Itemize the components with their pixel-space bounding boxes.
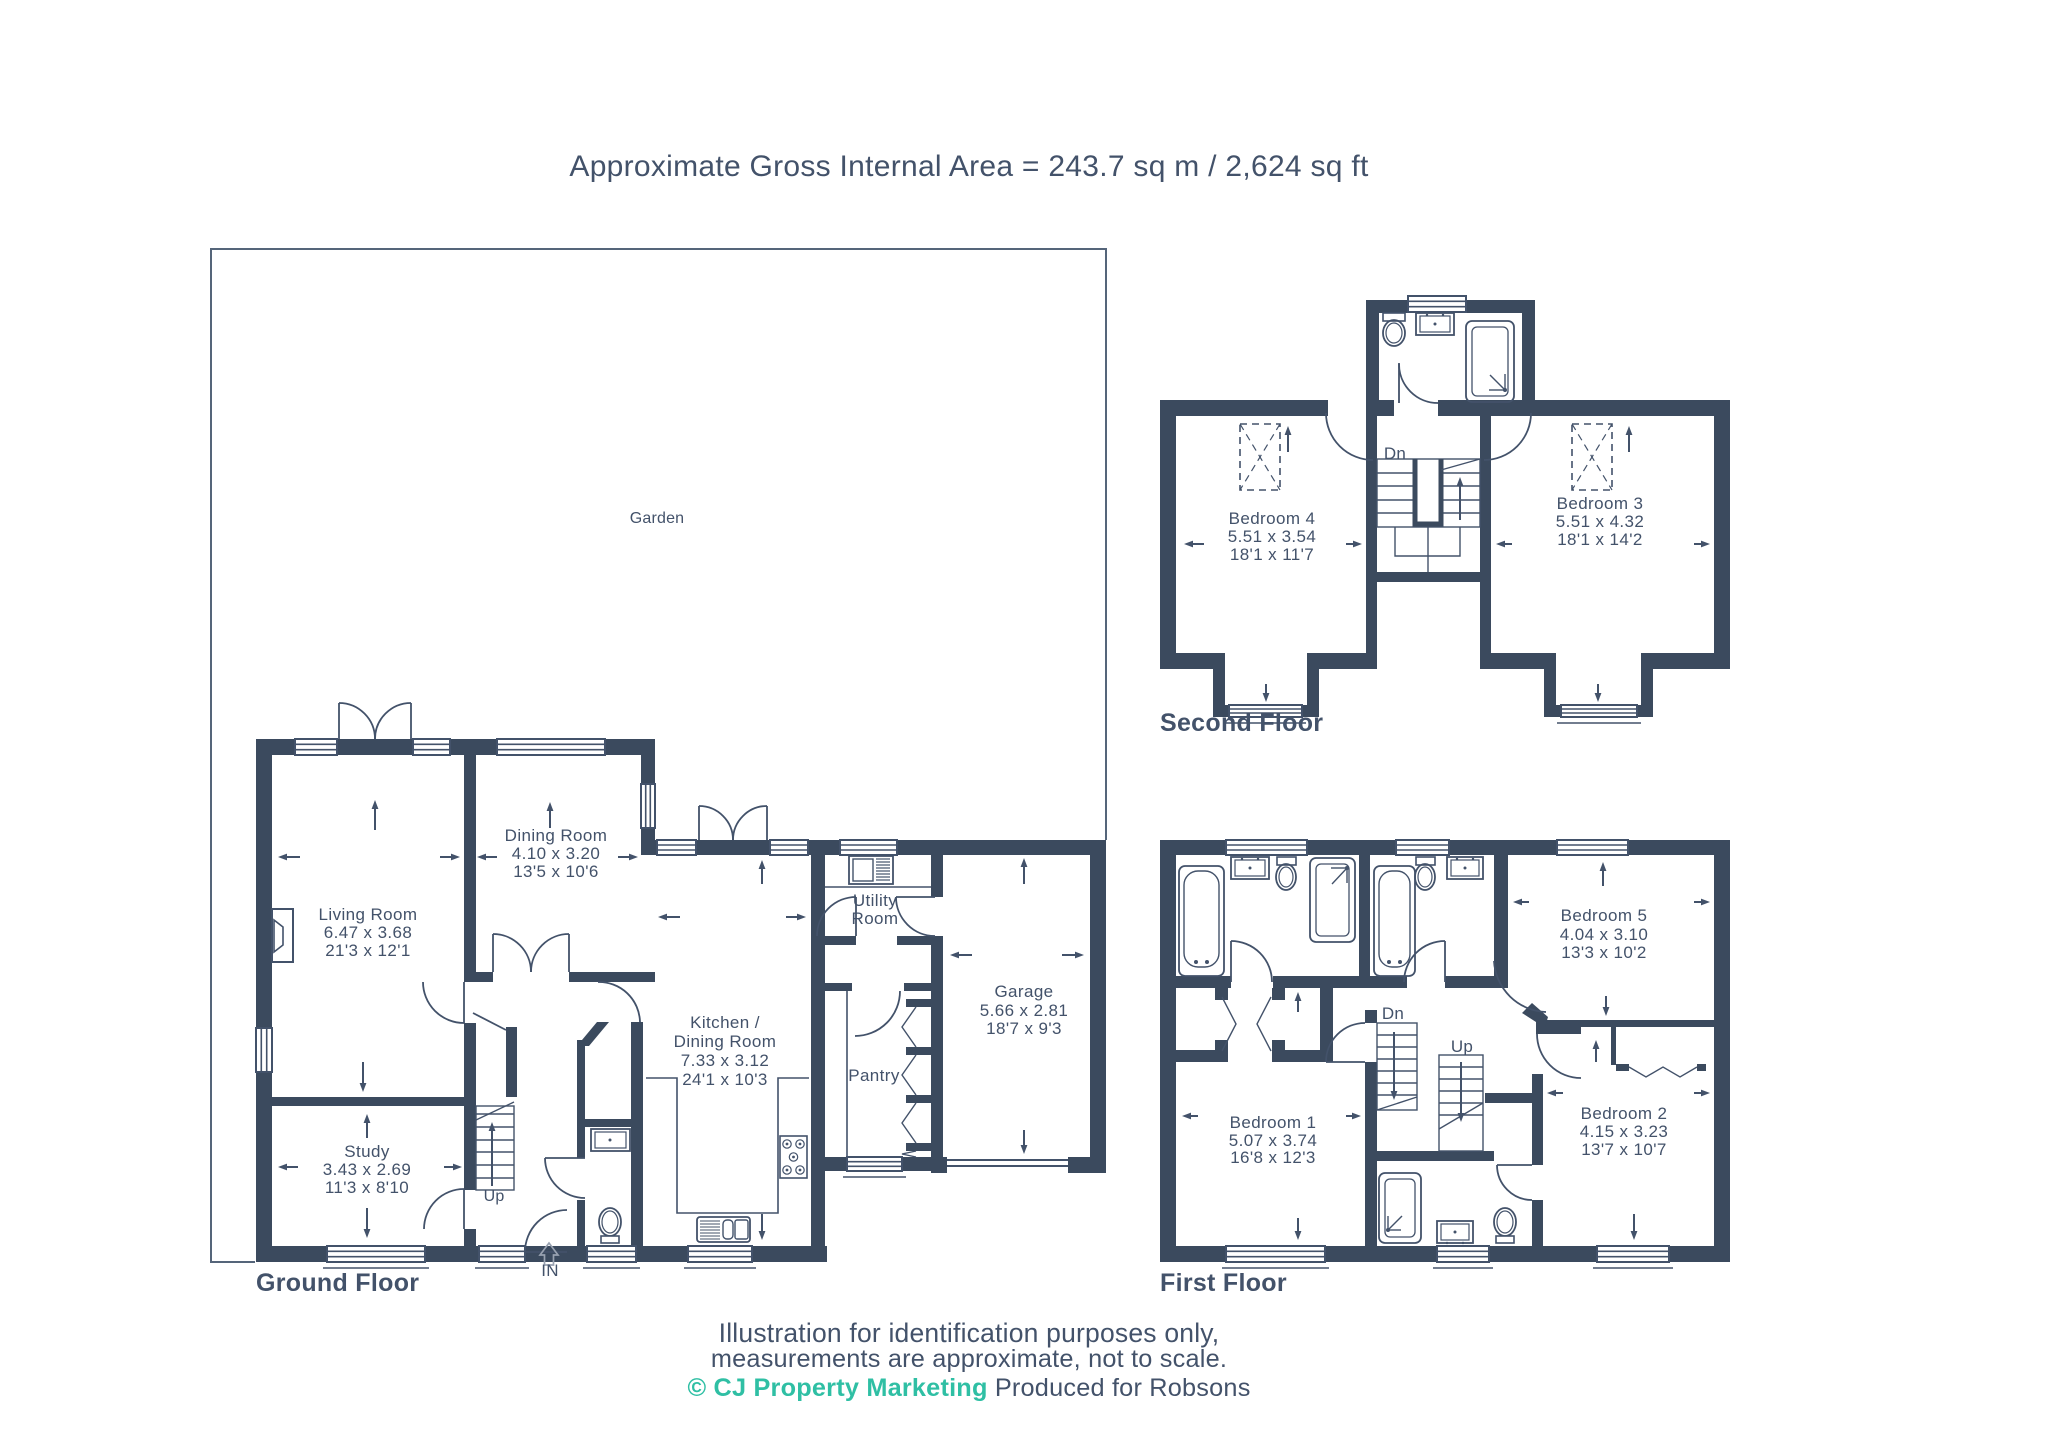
- svg-text:Room: Room: [852, 909, 899, 928]
- svg-text:Ground Floor: Ground Floor: [256, 1269, 419, 1297]
- svg-text:Bedroom 2: Bedroom 2: [1581, 1104, 1668, 1123]
- svg-text:Bedroom 1: Bedroom 1: [1230, 1113, 1317, 1132]
- svg-text:18'7 x 9'3: 18'7 x 9'3: [986, 1019, 1062, 1038]
- svg-text:4.10 x 3.20: 4.10 x 3.20: [512, 844, 601, 863]
- svg-text:21'3 x 12'1: 21'3 x 12'1: [325, 941, 411, 960]
- svg-text:Dn: Dn: [1382, 1004, 1404, 1023]
- svg-text:6.47 x 3.68: 6.47 x 3.68: [324, 923, 413, 942]
- svg-text:Up: Up: [484, 1188, 505, 1205]
- svg-text:5.51 x 4.32: 5.51 x 4.32: [1556, 512, 1645, 531]
- svg-text:13'3 x 10'2: 13'3 x 10'2: [1561, 943, 1647, 962]
- svg-text:Garden: Garden: [630, 510, 685, 527]
- svg-text:24'1 x 10'3: 24'1 x 10'3: [682, 1070, 768, 1089]
- svg-text:3.43 x 2.69: 3.43 x 2.69: [323, 1160, 412, 1179]
- svg-text:Approximate Gross Internal Are: Approximate Gross Internal Area = 243.7 …: [569, 150, 1369, 183]
- svg-text:13'5 x 10'6: 13'5 x 10'6: [513, 862, 599, 881]
- svg-text:Dining Room: Dining Room: [674, 1032, 777, 1051]
- svg-text:Utility: Utility: [853, 891, 897, 910]
- svg-text:Pantry: Pantry: [848, 1066, 900, 1085]
- svg-text:Study: Study: [344, 1142, 390, 1161]
- svg-text:Dining Room: Dining Room: [505, 826, 608, 845]
- svg-text:16'8 x 12'3: 16'8 x 12'3: [1230, 1148, 1316, 1167]
- svg-text:Kitchen /: Kitchen /: [690, 1013, 760, 1032]
- svg-text:18'1 x 14'2: 18'1 x 14'2: [1557, 530, 1643, 549]
- svg-text:5.51 x 3.54: 5.51 x 3.54: [1228, 527, 1317, 546]
- svg-text:18'1 x 11'7: 18'1 x 11'7: [1230, 545, 1314, 564]
- svg-text:First Floor: First Floor: [1160, 1269, 1287, 1297]
- svg-text:4.15 x 3.23: 4.15 x 3.23: [1580, 1122, 1669, 1141]
- svg-text:Up: Up: [1451, 1037, 1473, 1056]
- svg-text:IN: IN: [541, 1261, 558, 1280]
- svg-text:Garage: Garage: [994, 982, 1053, 1001]
- svg-text:Dn: Dn: [1384, 444, 1406, 463]
- svg-text:© CJ Property Marketing Produ: © CJ Property Marketing Produced for Rob…: [687, 1374, 1250, 1402]
- svg-text:Bedroom 4: Bedroom 4: [1229, 509, 1316, 528]
- svg-text:Second Floor: Second Floor: [1160, 709, 1323, 737]
- svg-text:13'7 x 10'7: 13'7 x 10'7: [1581, 1140, 1667, 1159]
- svg-text:11'3 x 8'10: 11'3 x 8'10: [325, 1178, 409, 1197]
- svg-text:measurements are approximate,: measurements are approximate, not to sca…: [711, 1345, 1227, 1373]
- svg-text:5.66 x 2.81: 5.66 x 2.81: [980, 1001, 1069, 1020]
- svg-text:Illustration for identificatio: Illustration for identification purposes…: [719, 1318, 1220, 1348]
- svg-text:4.04 x 3.10: 4.04 x 3.10: [1560, 925, 1649, 944]
- svg-text:7.33 x 3.12: 7.33 x 3.12: [681, 1051, 770, 1070]
- svg-text:Living Room: Living Room: [319, 905, 418, 924]
- svg-text:Bedroom 5: Bedroom 5: [1561, 906, 1648, 925]
- svg-text:Bedroom 3: Bedroom 3: [1557, 494, 1644, 513]
